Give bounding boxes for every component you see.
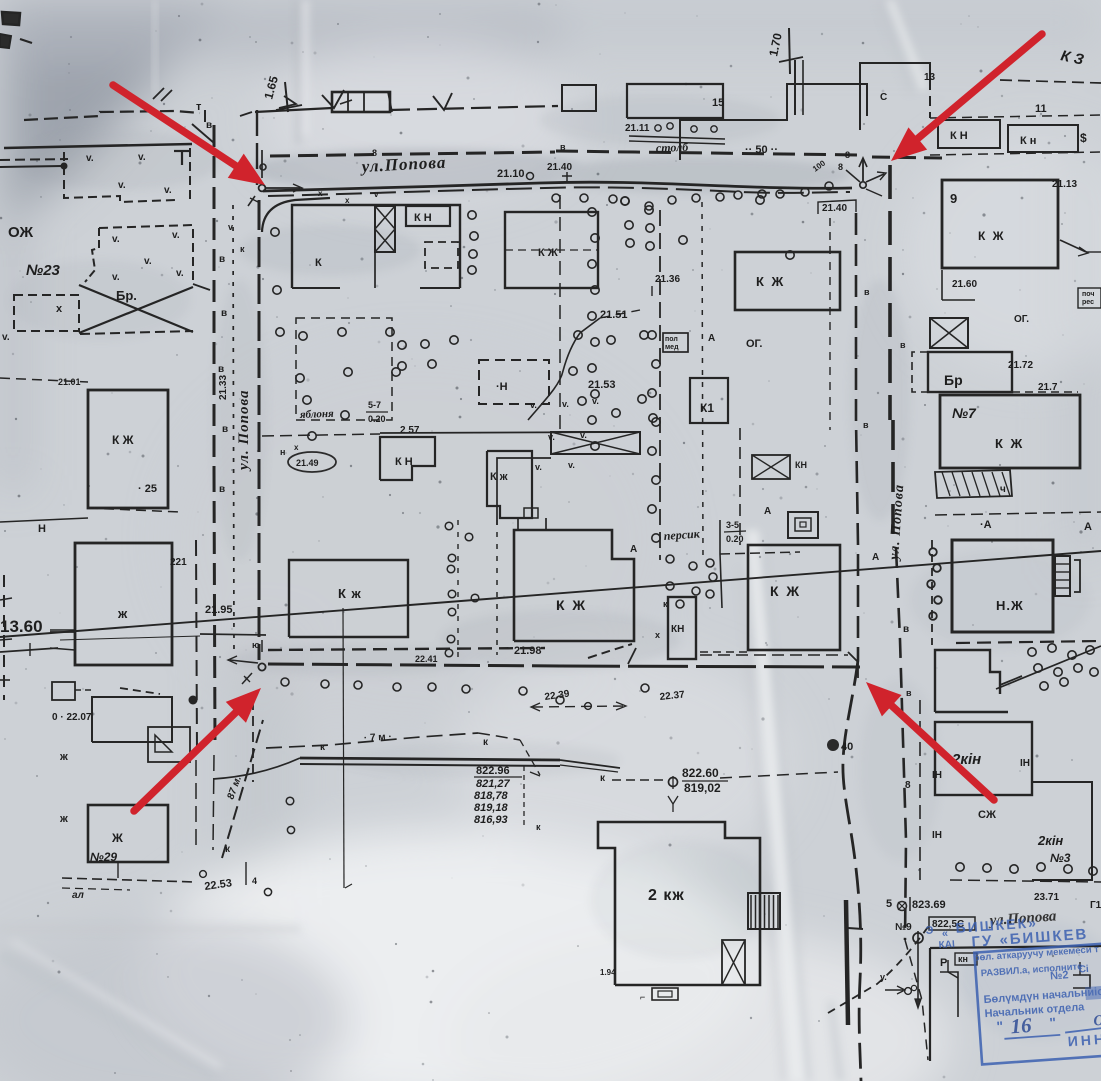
svg-text:v.: v. (562, 399, 569, 409)
svg-text:Э: Э (925, 924, 934, 937)
svg-text:v.: v. (176, 268, 184, 279)
svg-text:КН: КН (795, 460, 807, 470)
svg-text:К н: К н (1020, 135, 1036, 147)
svg-text:К Ж: К Ж (770, 583, 801, 599)
svg-text:23.71: 23.71 (1034, 892, 1059, 903)
svg-text:Р: Р (940, 957, 947, 969)
svg-text:v.: v. (112, 234, 120, 245)
svg-text:х: х (294, 443, 299, 452)
svg-text:21.53: 21.53 (588, 379, 616, 391)
svg-text:К Ж: К Ж (112, 433, 134, 447)
svg-text:819,18: 819,18 (474, 802, 509, 814)
svg-text:·А: ·А (980, 519, 992, 531)
svg-text:Бр: Бр (944, 372, 963, 388)
svg-text:в: в (903, 624, 909, 635)
svg-text:пол: пол (665, 336, 678, 343)
svg-text:21.60: 21.60 (952, 279, 977, 290)
svg-text:⌐: ⌐ (640, 992, 645, 1002)
svg-text:21.01: 21.01 (58, 377, 81, 387)
svg-text:5-7: 5-7 (368, 400, 381, 410)
svg-text:рес: рес (1082, 299, 1094, 306)
svg-text:ОЖ: ОЖ (8, 224, 33, 241)
svg-text:823.69: 823.69 (912, 899, 946, 911)
svg-text:21.10: 21.10 (497, 168, 525, 180)
svg-text:818,78: 818,78 (474, 790, 509, 802)
svg-text:v.: v. (535, 462, 542, 472)
svg-text:К1: К1 (700, 401, 714, 415)
svg-text:21.95: 21.95 (205, 604, 233, 616)
svg-text:К Н: К Н (395, 456, 413, 468)
svg-text:в: в (222, 424, 228, 435)
svg-text:н: н (280, 447, 285, 457)
svg-text:К Н: К Н (950, 130, 968, 142)
svg-text:в: в (219, 484, 225, 495)
svg-text:21.11: 21.11 (625, 123, 650, 134)
svg-text:21.49: 21.49 (296, 458, 319, 468)
svg-text:v.: v. (172, 230, 180, 241)
svg-text:х: х (655, 630, 660, 640)
svg-text:ІН: ІН (1020, 758, 1030, 769)
svg-text:Н: Н (38, 523, 46, 535)
svg-text:819,02: 819,02 (684, 781, 721, 795)
svg-text:ОГ.: ОГ. (746, 338, 762, 350)
svg-text:13.60: 13.60 (0, 617, 43, 636)
svg-text:21.40: 21.40 (547, 162, 572, 173)
svg-text:СЖ: СЖ (978, 809, 996, 821)
svg-text:Бр.: Бр. (116, 288, 137, 303)
svg-text:816,93: 816,93 (474, 814, 508, 826)
svg-text:в: в (906, 688, 912, 698)
svg-text:ІН: ІН (932, 830, 942, 841)
svg-text:v.: v. (112, 272, 120, 283)
svg-text:О: О (1093, 1013, 1101, 1030)
svg-text:к: к (240, 244, 245, 254)
svg-text:К ж: К ж (490, 471, 508, 483)
svg-text:в: в (206, 120, 212, 131)
svg-text:Сі: Сі (1078, 964, 1089, 976)
svg-text:К Н: К Н (414, 212, 432, 224)
svg-text:0.20: 0.20 (726, 534, 744, 544)
svg-text:А: А (630, 544, 637, 555)
svg-text:21.36: 21.36 (655, 274, 680, 285)
svg-text:К Ж: К Ж (756, 274, 785, 289)
svg-text:поч: поч (1082, 291, 1094, 298)
svg-text:16: 16 (1010, 1013, 1033, 1038)
svg-text:v.: v. (144, 256, 152, 267)
svg-text:А: А (872, 552, 879, 563)
svg-text:Ж: Ж (111, 831, 123, 845)
svg-text:ал: ал (72, 890, 85, 901)
svg-text:v.: v. (164, 185, 172, 196)
svg-text:ю: ю (252, 640, 260, 650)
svg-text:21.13: 21.13 (1052, 179, 1077, 190)
svg-text:0 · 22.07: 0 · 22.07 (52, 712, 92, 723)
svg-text:ул. Попова: ул. Попова (236, 389, 252, 472)
svg-text:в: в (219, 254, 225, 265)
svg-text:персик: персик (663, 526, 701, 543)
svg-text:2 57: 2 57 (400, 425, 420, 436)
svg-text:яблоня: яблоня (299, 408, 335, 421)
svg-text:К Ж: К Ж (995, 436, 1024, 451)
svg-text:v.: v. (118, 180, 126, 191)
svg-text:4: 4 (252, 876, 257, 886)
svg-text:": " (1049, 1014, 1057, 1030)
svg-text:3-5: 3-5 (726, 520, 739, 530)
svg-text:v.: v. (2, 332, 10, 343)
svg-text:ч: ч (1000, 484, 1006, 495)
svg-text:9: 9 (950, 191, 957, 206)
svg-text:2 кж: 2 кж (648, 887, 685, 904)
svg-text:21.51: 21.51 (600, 309, 628, 321)
svg-text:v: v (374, 190, 379, 199)
svg-text:т: т (196, 101, 202, 113)
svg-text:·· 50 ··: ·· 50 ·· (745, 144, 778, 156)
svg-text:ІН: ІН (932, 770, 942, 781)
svg-text:v: v (228, 222, 233, 232)
svg-text:ж: ж (59, 813, 68, 825)
svg-text:2кін: 2кін (1037, 833, 1063, 848)
svg-text:0.20: 0.20 (368, 414, 386, 424)
svg-text:в: в (900, 340, 906, 350)
svg-text:11: 11 (1035, 103, 1047, 115)
svg-text:21.72: 21.72 (1008, 360, 1033, 371)
svg-text:КАІ: КАІ (938, 939, 955, 951)
svg-text:· 7 м ·: · 7 м · (364, 732, 393, 744)
svg-text:1.94: 1.94 (600, 968, 616, 977)
svg-text:·Н: ·Н (496, 381, 508, 393)
svg-text:ж: ж (117, 606, 128, 621)
svg-text:№9: №9 (895, 922, 912, 933)
svg-text:40: 40 (841, 741, 853, 753)
svg-text:21.40: 21.40 (822, 203, 847, 214)
svg-text:К: К (315, 257, 322, 269)
svg-text:$: $ (1080, 131, 1087, 145)
svg-text:К Ж: К Ж (978, 229, 1006, 243)
svg-text:№3: №3 (1050, 851, 1071, 865)
svg-text:v.: v. (580, 430, 587, 440)
svg-text:кн: кн (958, 954, 968, 964)
svg-text:22.41: 22.41 (415, 654, 438, 664)
svg-text:№29: №29 (90, 850, 117, 864)
svg-text:К Ж: К Ж (556, 597, 587, 613)
svg-text:А: А (708, 333, 715, 344)
svg-text:мед: мед (665, 344, 679, 351)
svg-text:х: х (345, 196, 350, 205)
svg-text:5: 5 (886, 898, 892, 910)
svg-text:в: в (218, 364, 224, 375)
svg-text:х: х (318, 189, 323, 198)
svg-text:v.: v. (138, 152, 146, 163)
svg-text:v.: v. (530, 400, 537, 410)
svg-text:к: к (663, 599, 668, 609)
svg-text:А: А (764, 506, 771, 517)
svg-text:К ж: К ж (338, 586, 362, 601)
svg-text:8: 8 (905, 780, 911, 791)
svg-text:21.33: 21.33 (218, 375, 229, 400)
svg-text:у.: у. (880, 972, 887, 982)
svg-text:v.: v. (548, 432, 555, 442)
svg-text:в: в (560, 142, 566, 152)
svg-text:к: к (536, 822, 541, 832)
svg-text:С: С (880, 92, 887, 103)
svg-text:в: в (221, 308, 227, 319)
svg-text:v.: v. (568, 460, 575, 470)
svg-text:· 25: · 25 (138, 483, 157, 495)
svg-text:№2: №2 (1050, 969, 1069, 982)
svg-text:21.98: 21.98 (514, 645, 542, 657)
svg-text:х: х (56, 303, 63, 315)
svg-text:v.: v. (86, 153, 94, 164)
svg-text:v.: v. (592, 396, 599, 406)
svg-text:КН: КН (671, 624, 684, 635)
svg-text:15: 15 (712, 97, 724, 109)
svg-text:221: 221 (170, 557, 187, 568)
svg-text:ИНН: ИНН (1067, 1031, 1101, 1050)
svg-text:в: в (863, 420, 869, 430)
svg-text:822.60: 822.60 (682, 766, 719, 780)
svg-text:8: 8 (838, 162, 843, 172)
svg-text:в: в (864, 287, 870, 297)
svg-text:Г1: Г1 (1090, 900, 1101, 911)
svg-text:Н.Ж: Н.Ж (996, 598, 1024, 613)
svg-text:8: 8 (845, 150, 850, 160)
svg-text:822.96: 822.96 (476, 765, 510, 777)
svg-text:ж: ж (59, 751, 68, 763)
svg-text:А: А (1084, 521, 1092, 533)
svg-text:«: « (942, 928, 949, 940)
svg-text:": " (996, 1018, 1004, 1034)
svg-text:ОГ.: ОГ. (1014, 314, 1029, 325)
svg-text:№7: №7 (952, 405, 977, 421)
svg-text:№23: №23 (26, 262, 61, 279)
svg-text:821,27: 821,27 (476, 778, 511, 790)
svg-text:К Ж: К Ж (538, 247, 558, 259)
